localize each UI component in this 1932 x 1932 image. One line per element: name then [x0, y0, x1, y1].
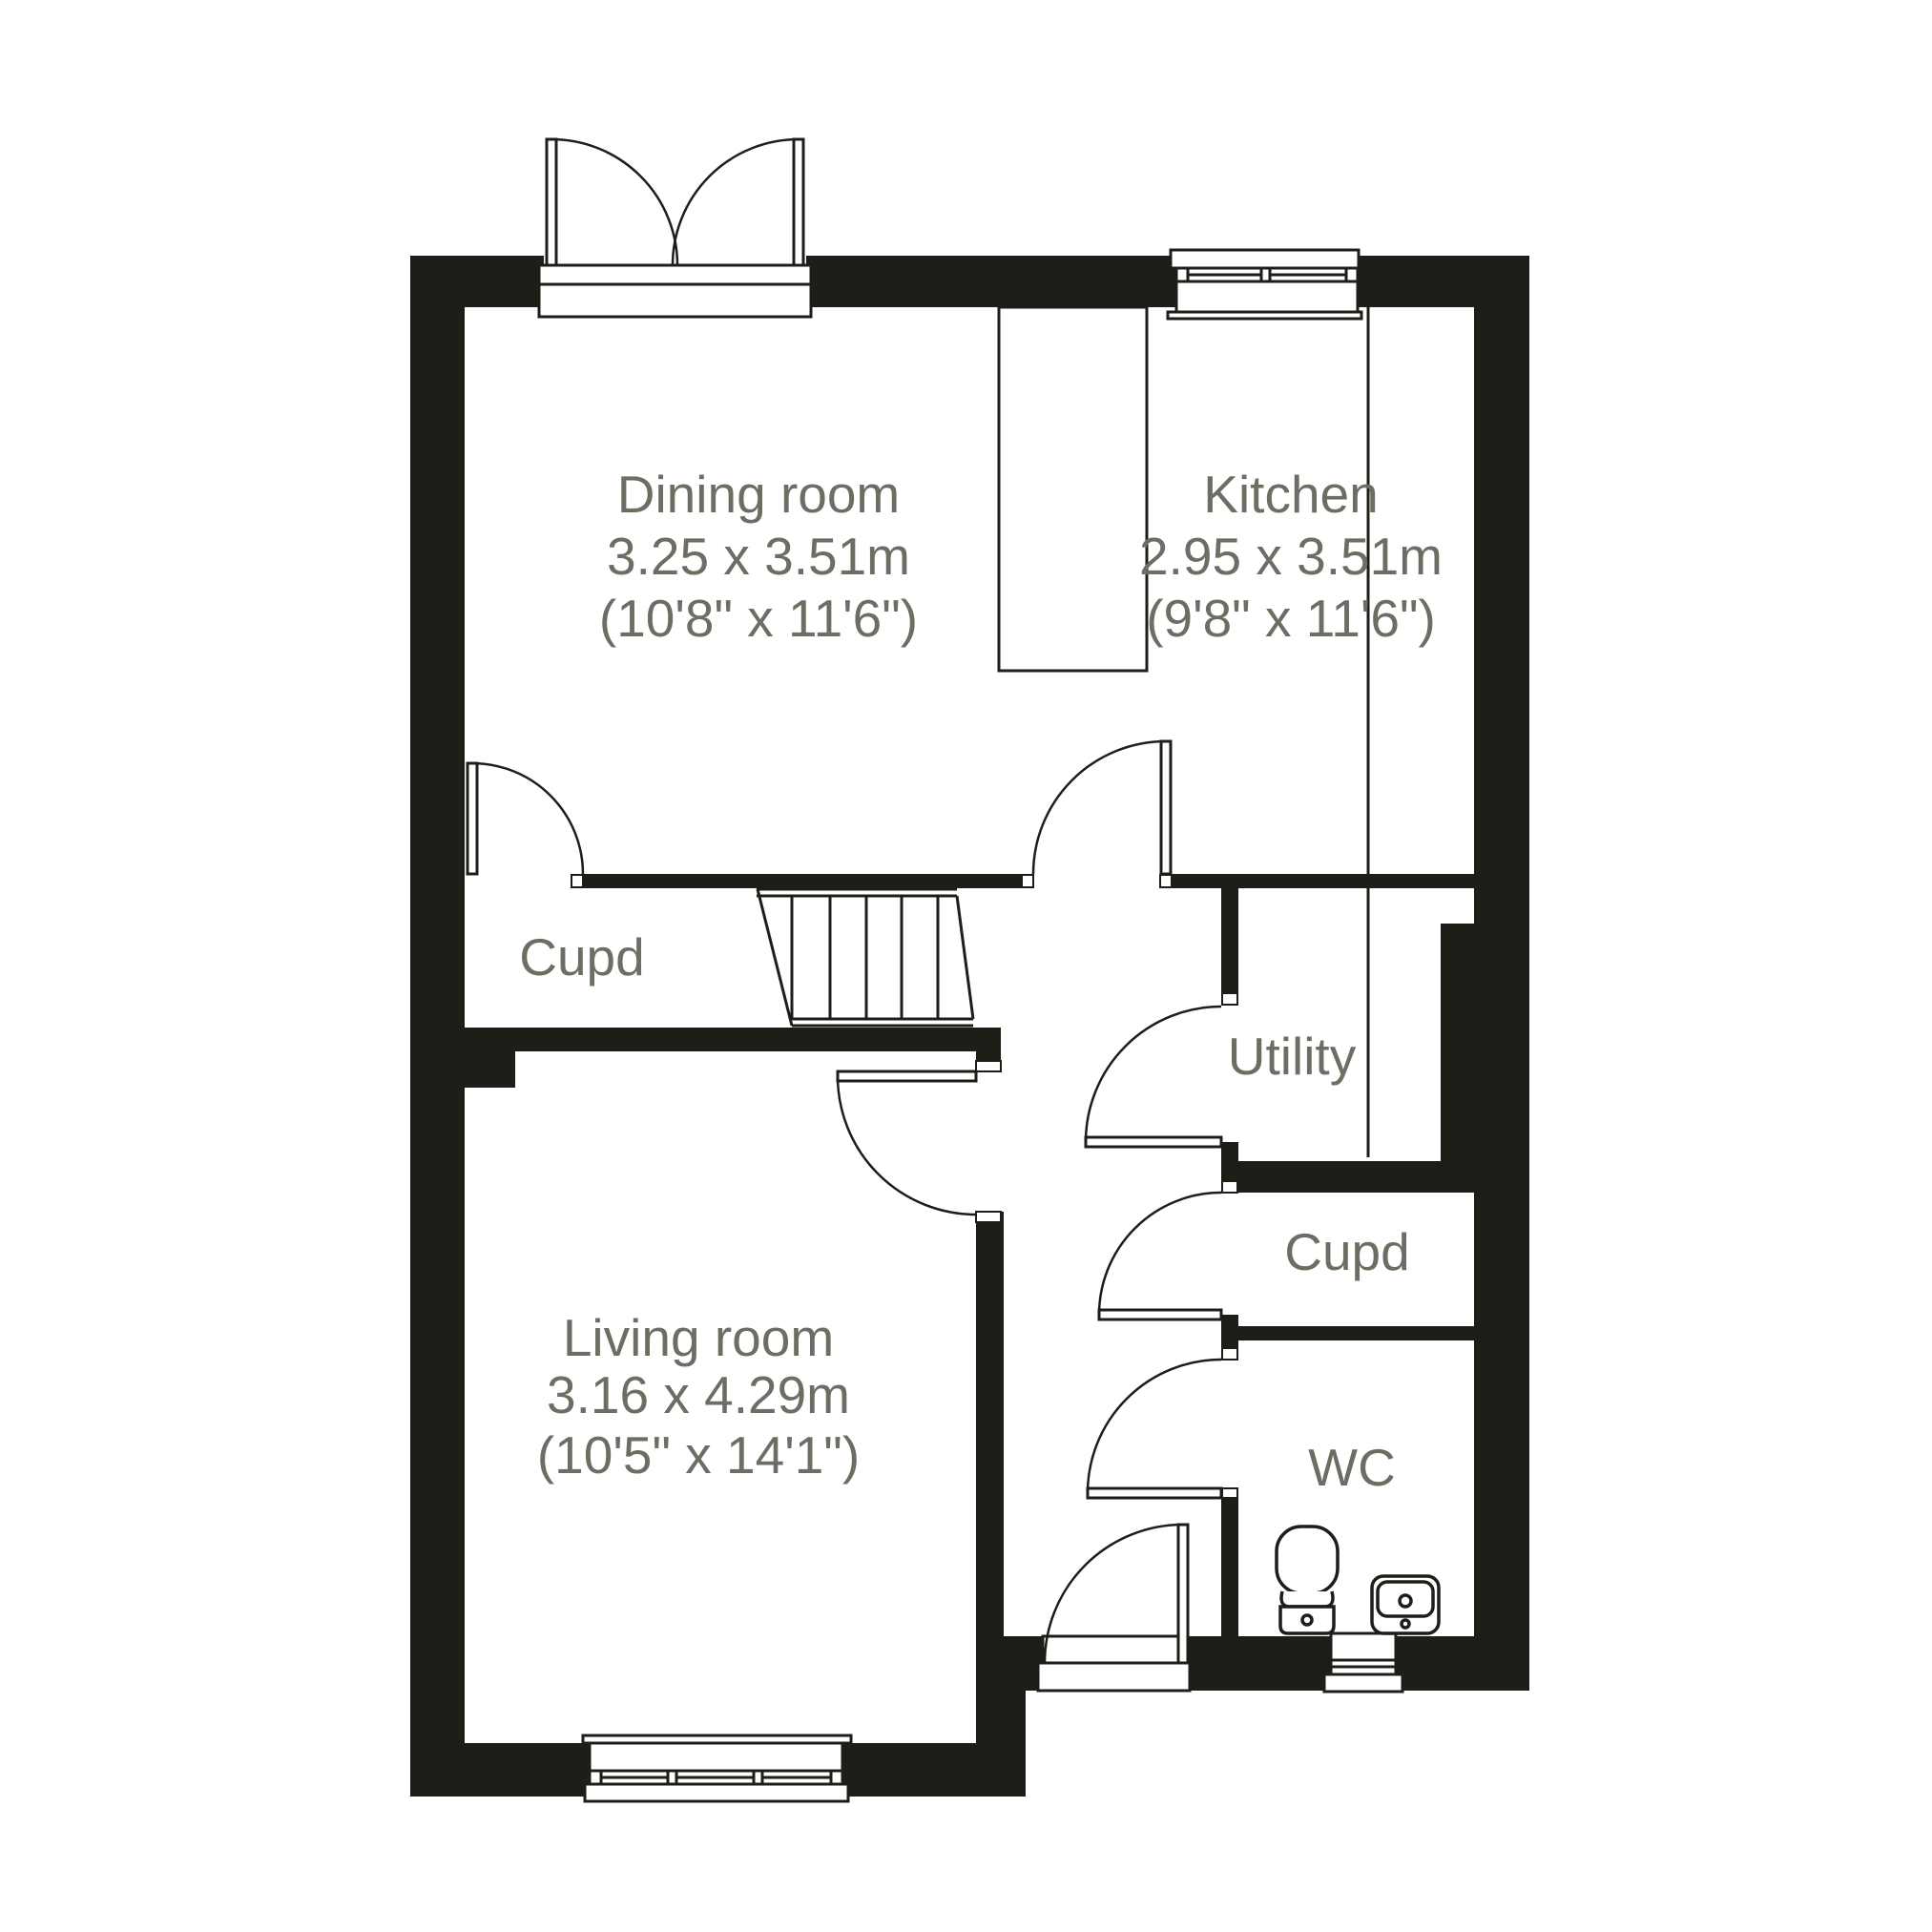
staircase — [757, 889, 973, 1026]
wall-cupboard-wc-divider — [1221, 1326, 1474, 1340]
kitchen-label: Kitchen — [1203, 465, 1378, 524]
living-room-dims-ft: (10'5" x 14'1") — [537, 1425, 860, 1485]
dining-room-label: Dining room — [617, 465, 901, 524]
kitchen-window — [1168, 250, 1361, 319]
living-room-door — [838, 1061, 1001, 1222]
hall-cupboard-door — [1099, 1181, 1237, 1319]
floorplan-page: Dining room 3.25 x 3.51m (10'8" x 11'6")… — [0, 0, 1932, 1932]
living-room-label: Living room — [563, 1308, 834, 1367]
wall-dining-hall-left — [582, 874, 1028, 888]
dining-room-dims-m: 3.25 x 3.51m — [607, 527, 910, 586]
wall-utility-cupboard-divider — [1221, 1161, 1474, 1193]
understairs-cupboard-label: Cupd — [519, 927, 644, 987]
kitchen-dims-m: 2.95 x 3.51m — [1139, 527, 1443, 586]
wall-kitchen-utility — [1166, 874, 1474, 888]
wc-label: WC — [1308, 1438, 1396, 1497]
front-door-sill — [1038, 1663, 1190, 1691]
french-door-swing-left — [551, 139, 677, 265]
front-door — [1038, 1525, 1190, 1691]
french-door-swing-right — [673, 139, 799, 265]
toilet-icon — [1277, 1527, 1338, 1633]
french-door — [539, 139, 811, 317]
wall-right — [1474, 256, 1529, 1691]
wall-bottom-living-right — [842, 1743, 1026, 1797]
stair-side — [957, 896, 973, 1019]
wc-fixtures — [1277, 1527, 1439, 1633]
wall-living-hall-vertical — [976, 1212, 1004, 1743]
front-door-leaf — [1178, 1525, 1188, 1663]
french-door-leaf-right — [794, 139, 803, 265]
wall-hall-utility-upper — [1221, 874, 1238, 1005]
french-door-leaf-left — [547, 139, 556, 265]
wall-left — [410, 256, 465, 1797]
dining-room-dims-ft: (10'8" x 11'6") — [599, 589, 918, 648]
wc-door — [1088, 1348, 1237, 1498]
hall-cupboard-label: Cupd — [1284, 1222, 1409, 1281]
floorplan-drawing: Dining room 3.25 x 3.51m (10'8" x 11'6")… — [0, 0, 1932, 1932]
sink-icon — [1372, 1576, 1439, 1633]
utility-door — [1086, 993, 1237, 1147]
wall-hall-living — [465, 1028, 976, 1051]
wall-bottom-wc-left-of-window — [1185, 1636, 1331, 1691]
kitchen-window-mullion — [1261, 268, 1270, 281]
wall-top-middle — [806, 256, 1176, 307]
wall-right-utility-thickening — [1441, 924, 1474, 1193]
living-window-mullion — [754, 1771, 762, 1784]
living-room-window — [583, 1735, 851, 1801]
french-door-threshold — [539, 265, 811, 317]
kitchen-counter-block — [999, 307, 1147, 671]
wall-pier-left — [465, 1028, 515, 1088]
wall-bottom-living-left — [410, 1743, 590, 1797]
living-room-dims-m: 3.16 x 4.29m — [547, 1365, 850, 1424]
kitchen-door — [1022, 741, 1172, 887]
understairs-cupboard-door — [467, 763, 583, 887]
wc-window — [1324, 1633, 1402, 1692]
kitchen-dims-ft: (9'8" x 11'6") — [1146, 589, 1436, 648]
living-window-mullion — [668, 1771, 676, 1784]
utility-label: Utility — [1228, 1027, 1357, 1086]
wall-bottom-wc-right-of-window — [1396, 1636, 1529, 1691]
stair-pitch-line — [758, 889, 792, 1026]
wall-front-door-recess — [1004, 1636, 1026, 1797]
front-door-threshold — [1043, 1636, 1185, 1663]
wall-hall-wc — [1221, 1498, 1238, 1636]
